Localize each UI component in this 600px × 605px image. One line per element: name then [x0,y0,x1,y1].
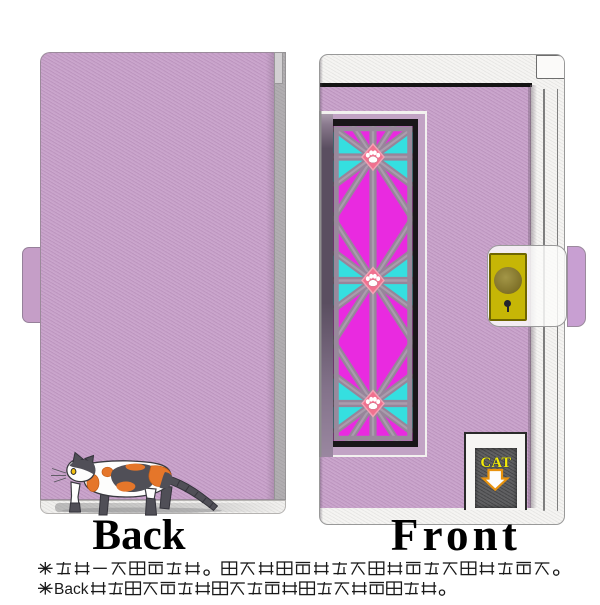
svg-text:Back: Back [54,581,89,598]
